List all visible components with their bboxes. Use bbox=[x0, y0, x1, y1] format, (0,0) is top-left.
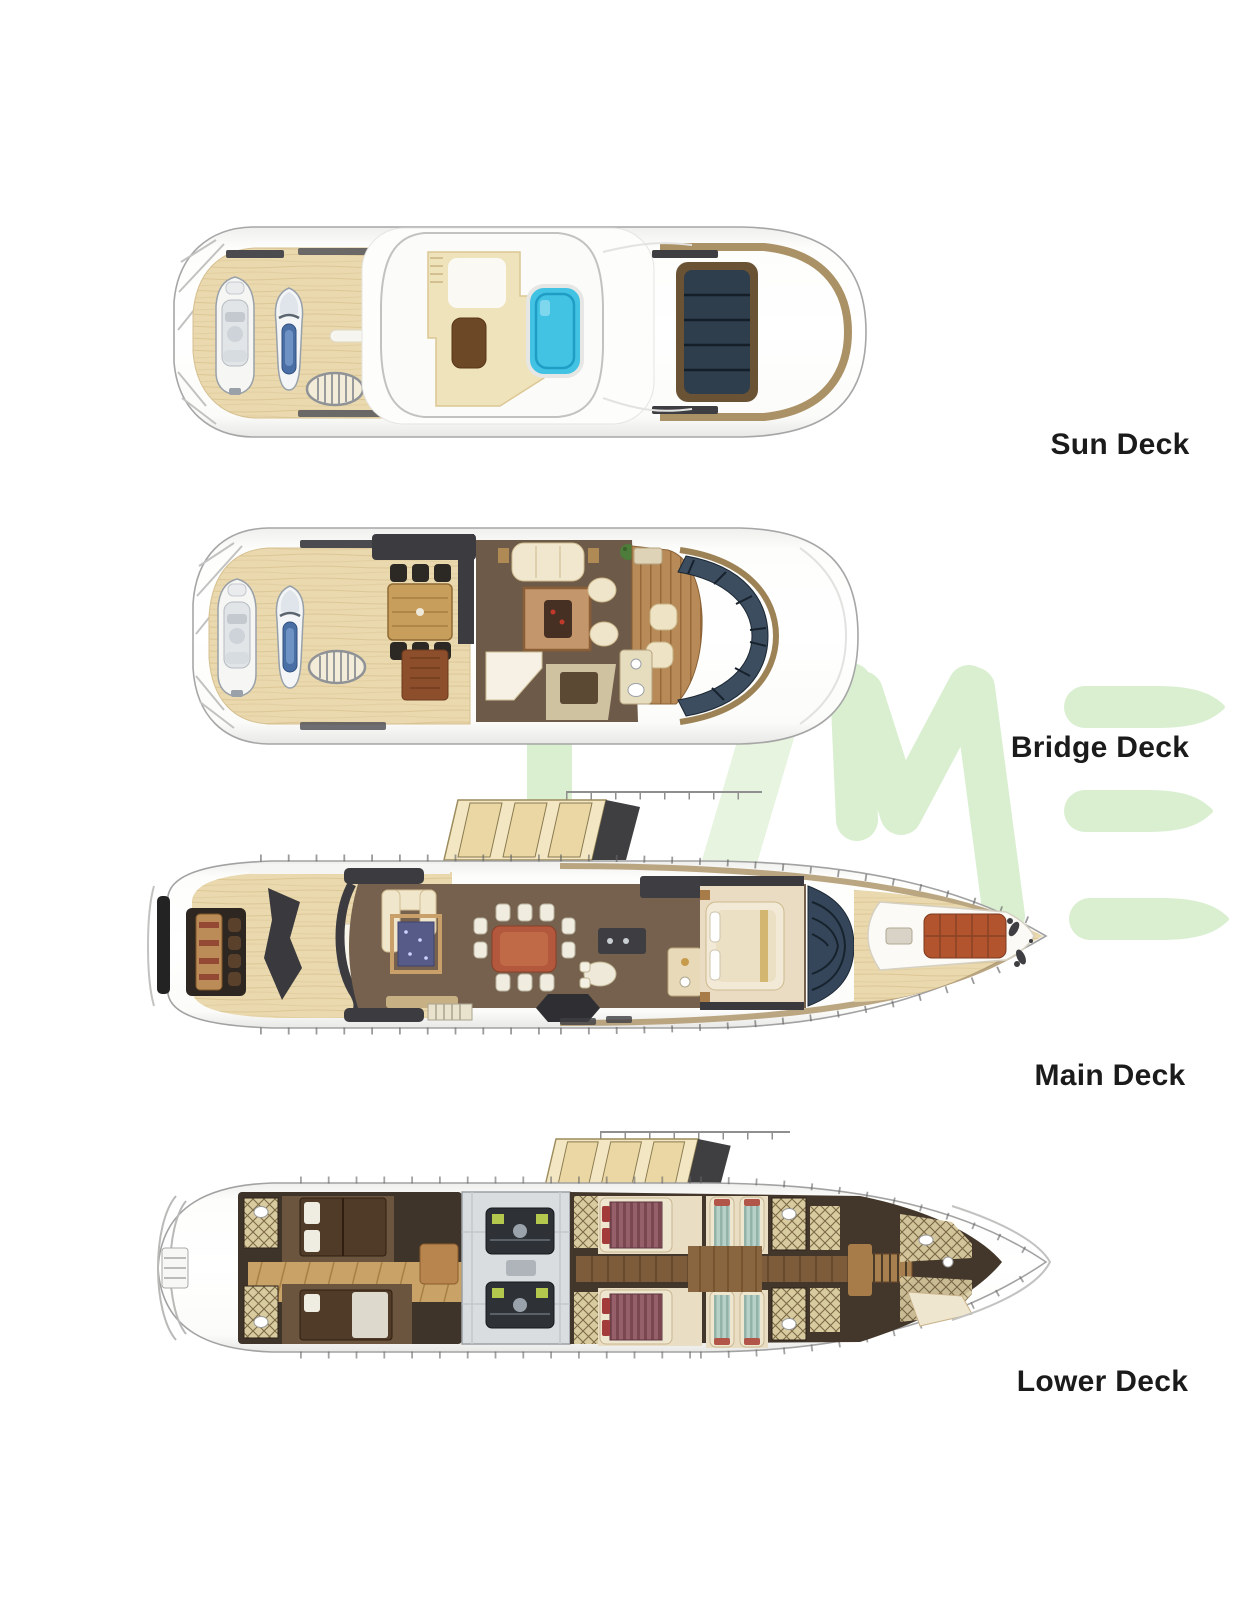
alfresco-dining-icon bbox=[388, 564, 452, 660]
toilet-icon bbox=[782, 1209, 796, 1220]
tender-icon bbox=[218, 579, 256, 697]
toilet-icon bbox=[254, 1317, 268, 1328]
master-bed-icon bbox=[706, 902, 784, 990]
crew-bunk-icon bbox=[300, 1198, 386, 1256]
toilet-icon bbox=[782, 1319, 796, 1330]
sofa-icon bbox=[512, 543, 584, 581]
engine-icon bbox=[486, 1208, 554, 1254]
helm-chair-icon bbox=[650, 604, 677, 630]
sun-deck-plan bbox=[174, 227, 866, 437]
crew-mess-icon bbox=[420, 1244, 458, 1284]
toilet-icon bbox=[254, 1207, 268, 1218]
jet-ski-icon bbox=[275, 288, 302, 390]
transom bbox=[157, 896, 170, 994]
lower-deck-label: Lower Deck bbox=[990, 1365, 1215, 1399]
aft-dining-icon bbox=[186, 908, 246, 996]
vip-bed-icon bbox=[600, 1198, 672, 1252]
armchair-icon bbox=[588, 578, 616, 602]
armchair-icon bbox=[590, 622, 618, 646]
tender-icon bbox=[216, 277, 254, 395]
vip-bed-icon bbox=[600, 1290, 672, 1344]
side-stairs bbox=[428, 1004, 472, 1020]
stairs-icon bbox=[309, 651, 365, 683]
bar-icon bbox=[536, 994, 600, 1022]
crew-bunk-icon bbox=[300, 1290, 392, 1340]
table-icon bbox=[452, 318, 486, 368]
lower-deck-plan bbox=[158, 1132, 1050, 1355]
tv-console-icon bbox=[544, 600, 572, 638]
sunpad-hatch bbox=[444, 800, 640, 860]
yacht-deck-plan-page: Sun Deck Bridge Deck Main Deck Lower Dec… bbox=[0, 0, 1250, 1619]
rug-icon bbox=[398, 922, 434, 966]
sun-deck-label: Sun Deck bbox=[1020, 428, 1220, 462]
jet-ski-icon bbox=[276, 586, 303, 688]
bridge-deck-plan bbox=[193, 528, 858, 744]
stairs-icon bbox=[307, 373, 363, 405]
main-deck-label: Main Deck bbox=[1000, 1059, 1220, 1093]
toilet-icon bbox=[628, 684, 644, 697]
engine-icon bbox=[486, 1282, 554, 1328]
bridge-deck-label: Bridge Deck bbox=[985, 731, 1215, 765]
